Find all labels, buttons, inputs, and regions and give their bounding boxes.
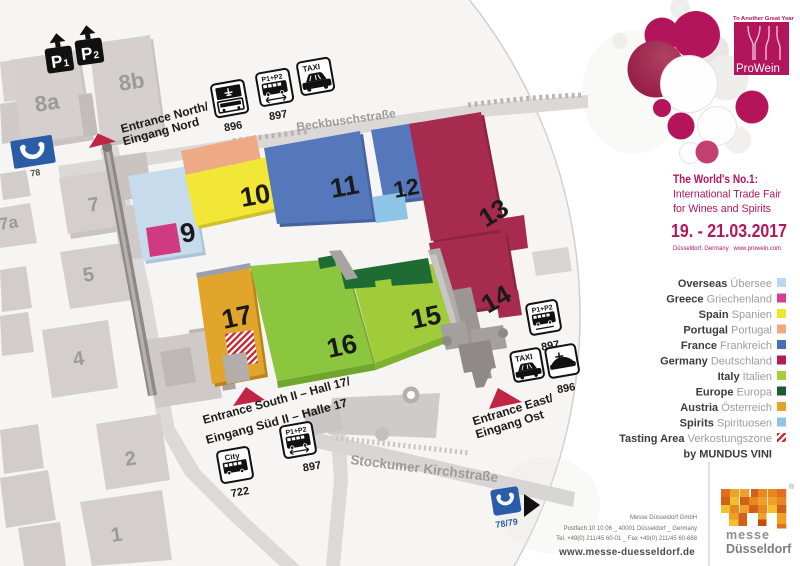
svg-text:International Trade Fair: International Trade Fair [673,189,781,201]
svg-text:Portugal Portugal: Portugal Portugal [683,325,772,337]
svg-text:messe: messe [726,528,770,542]
svg-text:Overseas Übersee: Overseas Übersee [678,278,772,290]
svg-text:8a: 8a [33,88,62,117]
svg-text:To Another Great Year: To Another Great Year [733,16,795,22]
svg-text:Düsseldorf, Germany www.prow: Düsseldorf, Germany www.prowein.com [673,245,781,252]
svg-text:Messe Düsseldorf GmbH: Messe Düsseldorf GmbH [630,515,697,521]
svg-text:17: 17 [219,299,255,335]
svg-text:Tel. +49(0) 211/45 60-01 _ Fax: Tel. +49(0) 211/45 60-01 _ Fax +49(0) 21… [556,536,698,542]
svg-text:19. - 21.03.2017: 19. - 21.03.2017 [671,220,787,241]
svg-text:Tasting Area Verkostungszone: Tasting Area Verkostungszone [619,433,772,445]
svg-text:15: 15 [408,299,444,335]
svg-text:®: ® [789,483,795,491]
svg-text:Greece Griechenland: Greece Griechenland [666,294,772,306]
svg-text:Germany Deutschland: Germany Deutschland [660,356,772,368]
svg-text:Postfach 10 10 06 _ 40001 Düss: Postfach 10 10 06 _ 40001 Düsseldorf _ G… [564,526,697,532]
svg-text:12: 12 [391,173,421,203]
svg-text:16: 16 [324,328,360,364]
svg-text:8b: 8b [117,67,146,96]
svg-text:10: 10 [238,178,273,213]
svg-text:11: 11 [328,169,361,204]
svg-text:78: 78 [30,167,41,178]
svg-text:Europe Europa: Europe Europa [696,387,773,399]
svg-text:www.messe-duesseldorf.de: www.messe-duesseldorf.de [558,547,695,558]
svg-text:Italy Italien: Italy Italien [718,371,772,383]
svg-text:Austria Österreich: Austria Österreich [680,402,772,414]
svg-text:Spain Spanien: Spain Spanien [699,309,772,321]
svg-text:by MUNDUS VINI: by MUNDUS VINI [683,449,772,461]
svg-text:Düsseldorf: Düsseldorf [726,542,792,556]
svg-text:Spirits Spirituosen: Spirits Spirituosen [680,418,772,430]
svg-text:The World's No.1:: The World's No.1: [673,174,758,186]
svg-text:for Wines and Spirits: for Wines and Spirits [673,203,771,215]
svg-text:ProWein: ProWein [736,63,780,75]
svg-text:France Frankreich: France Frankreich [681,340,772,352]
